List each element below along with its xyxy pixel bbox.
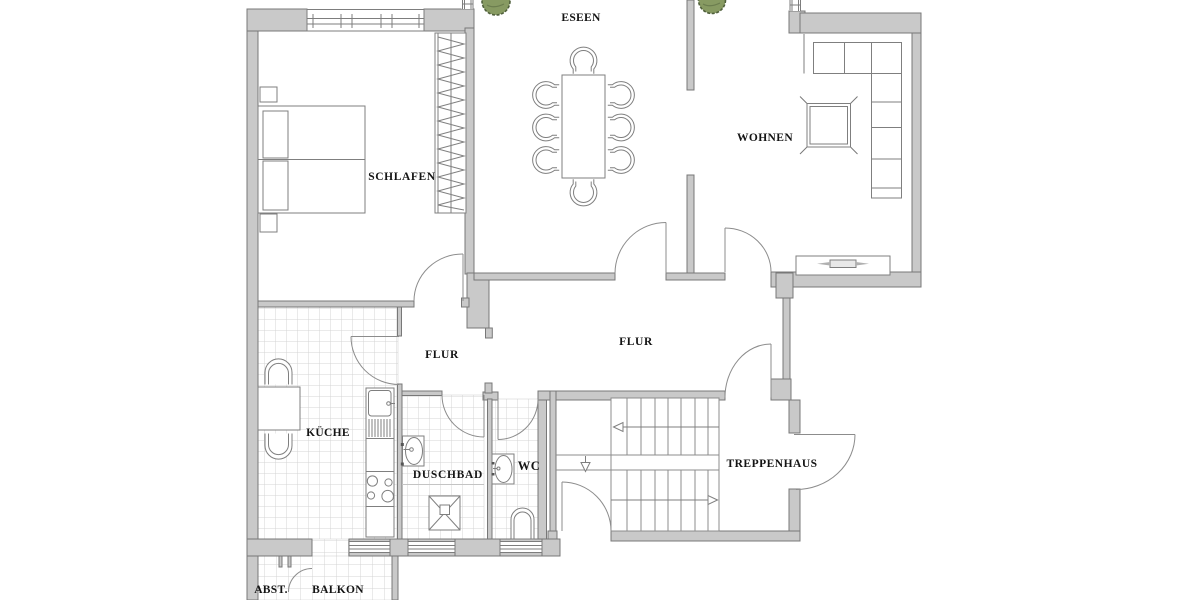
svg-text:FLUR: FLUR [425, 349, 459, 361]
svg-text:ESEEN: ESEEN [561, 12, 601, 24]
svg-text:KÜCHE: KÜCHE [306, 425, 350, 439]
svg-text:SCHLAFEN: SCHLAFEN [368, 171, 436, 183]
svg-text:BALKON: BALKON [312, 584, 364, 596]
svg-text:WOHNEN: WOHNEN [737, 132, 793, 144]
svg-text:TREPPENHAUS: TREPPENHAUS [726, 458, 817, 470]
svg-text:FLUR: FLUR [619, 336, 653, 348]
svg-text:DUSCHBAD: DUSCHBAD [413, 469, 483, 481]
svg-text:WC: WC [518, 459, 541, 473]
svg-text:ABST.: ABST. [254, 584, 288, 596]
